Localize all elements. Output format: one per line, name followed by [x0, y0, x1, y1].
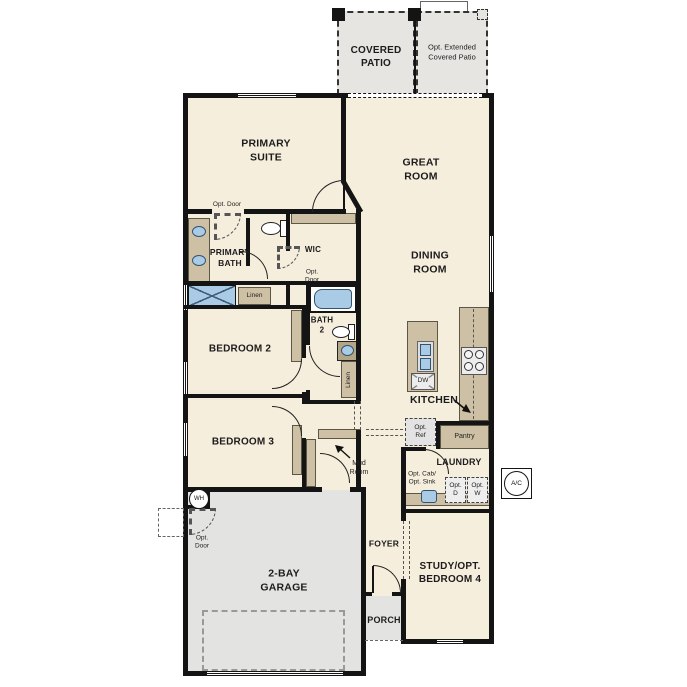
opt-dryer-box: Opt. D	[445, 477, 466, 503]
room-label-mud-room: Mud Room	[350, 459, 369, 477]
linen-closet-1: Linen	[238, 287, 271, 305]
front-door-leaf	[372, 566, 374, 593]
wall-right	[489, 93, 494, 644]
patio-corner-notch	[477, 9, 488, 20]
water-heater-icon: WH	[189, 489, 209, 509]
opt-washer-label: Opt. W	[471, 482, 483, 498]
ac-unit-badge: A/C	[501, 468, 532, 499]
opt-door-label-garage: Opt. Door	[195, 535, 209, 552]
primary-suite-door-leaf	[343, 180, 345, 212]
room-label-kitchen: KITCHEN	[410, 394, 458, 408]
wall-laundry-top	[401, 447, 426, 451]
wall-garage-bottom-b	[343, 671, 366, 676]
bath2-sink	[341, 345, 354, 356]
burner-icon	[475, 350, 484, 359]
wall-garage-right	[361, 487, 366, 676]
room-label-bath2: BATH 2	[311, 316, 333, 337]
room-label-primary-suite: PRIMARY SUITE	[241, 137, 290, 164]
room-label-primary-bath: PRIMARY BATH	[210, 247, 250, 269]
porch-edge-dash	[365, 640, 403, 641]
opt-dryer-label: Opt. D	[449, 482, 461, 498]
garage-opt-door-landing	[158, 508, 184, 537]
bedroom2-closet	[291, 310, 302, 362]
patio-sliding-door	[348, 93, 482, 98]
wall-study-left-b	[401, 579, 406, 644]
extended-patio-roofline	[420, 1, 468, 11]
bedroom3-window	[183, 423, 188, 456]
opt-washer-box: Opt. W	[467, 477, 488, 503]
room-label-study: STUDY/OPT. BEDROOM 4	[419, 560, 481, 586]
burner-icon	[464, 350, 473, 359]
wall-suite-right	[341, 93, 346, 182]
wic-shelf	[291, 213, 356, 224]
wall-bath2-bottom	[306, 400, 361, 404]
island-sink-basin-2	[420, 358, 431, 370]
bathtub	[314, 289, 352, 309]
primary-suite-window	[238, 93, 296, 98]
laundry-sink	[421, 490, 437, 503]
wall-study-bottom-a	[401, 639, 437, 644]
room-label-great-room: GREAT ROOM	[403, 156, 440, 183]
opt-door-label-wic: Opt. Door	[305, 269, 319, 286]
water-heater-label: WH	[194, 496, 204, 502]
bath2-toilet-bowl	[332, 326, 350, 338]
island-sink-basin-1	[420, 344, 431, 356]
room-label-garage: 2-BAY GARAGE	[260, 567, 307, 594]
vanity-sink-2	[192, 255, 206, 266]
primary-toilet-bowl	[261, 222, 281, 235]
patio-post-left	[332, 8, 345, 21]
bedroom2-window	[183, 362, 188, 395]
wall-laundry-bottom	[401, 509, 494, 513]
room-label-dining-room: DINING ROOM	[411, 249, 449, 276]
study-opening-dash	[403, 521, 404, 579]
wall-porch-top-a	[363, 592, 372, 596]
dishwasher-label: DW	[417, 377, 430, 385]
wall-garage-bottom-a	[183, 671, 207, 676]
room-label-bedroom2: BEDROOM 2	[209, 343, 271, 356]
wall-hall-left-c	[302, 438, 306, 487]
hall-opening-dash	[360, 401, 361, 430]
floor-plan: Linen Linen Pantry DW Opt. Ref Opt. D Op…	[0, 0, 687, 687]
room-label-laundry: LAUNDRY	[436, 457, 481, 469]
vanity-sink-1	[192, 226, 206, 237]
garage-door-opening	[207, 671, 343, 676]
shower	[188, 285, 236, 307]
wall-study-bottom-b	[463, 639, 494, 644]
linen-1-label: Linen	[247, 292, 263, 300]
cooktop	[461, 347, 487, 375]
wall-bath2-left-a	[306, 283, 310, 345]
wall-bath-wic-a	[286, 209, 290, 251]
wall-central-a	[356, 209, 361, 401]
passage-dash	[366, 435, 403, 436]
room-label-bedroom3: BEDROOM 3	[212, 436, 274, 449]
patio-divider-wall	[414, 11, 416, 95]
hall-opening-dash	[354, 401, 355, 430]
pantry-cabinet: Pantry	[440, 425, 489, 449]
wall-bedroom2-top	[183, 305, 307, 309]
room-label-foyer: FOYER	[369, 538, 399, 549]
linen-closet-2: Linen	[341, 361, 357, 398]
passage-dash	[366, 429, 403, 430]
mudroom-bench-side	[306, 439, 316, 487]
wall-bed-divider	[183, 394, 307, 398]
study-opening-dash	[409, 521, 410, 579]
dining-window	[489, 236, 494, 292]
opt-ref-label: Opt. Ref	[414, 424, 426, 440]
garage-door-outline	[202, 610, 345, 671]
burner-icon	[475, 362, 484, 371]
opt-cab-sink-label: Opt. Cab/ Opt. Sink	[408, 471, 436, 488]
room-label-opt-extended-patio: Opt. Extended Covered Patio	[428, 42, 476, 62]
pantry-label: Pantry	[454, 433, 474, 442]
room-label-porch: PORCH	[367, 615, 401, 627]
wall-pantry-left	[436, 421, 440, 449]
patio-post-right	[408, 8, 421, 21]
wall-pantry-top	[436, 421, 494, 425]
room-label-covered-patio: COVERED PATIO	[351, 44, 402, 70]
mudroom-bench-top	[318, 429, 361, 439]
burner-icon	[464, 362, 473, 371]
opt-refrigerator: Opt. Ref	[405, 418, 436, 446]
dishwasher: DW	[411, 373, 435, 390]
wall-bath-row	[183, 281, 286, 285]
mudroom-arrow	[335, 445, 352, 460]
linen-2-label: Linen	[345, 372, 353, 388]
wall-wic-bottom	[290, 281, 357, 285]
study-window	[437, 639, 463, 644]
room-label-wic: WIC	[305, 245, 321, 255]
ac-unit-label: A/C	[511, 480, 522, 487]
wall-laundry-left	[401, 447, 406, 511]
opt-door-label-bath: Opt. Door	[213, 201, 241, 209]
wall-suite-bottom-a	[183, 209, 212, 214]
ac-unit-icon: A/C	[504, 471, 529, 496]
